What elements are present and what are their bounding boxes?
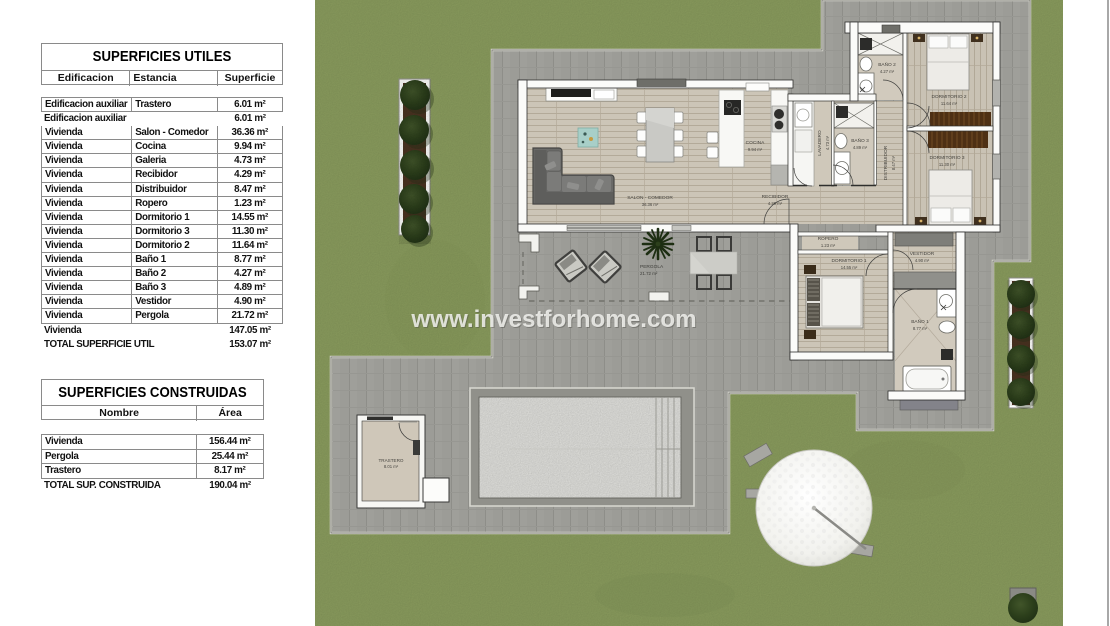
svg-text:LAVADERO: LAVADERO	[817, 130, 823, 156]
svg-text:DORMITORIO 2: DORMITORIO 2	[931, 94, 966, 100]
svg-text:BAÑO 3: BAÑO 3	[851, 137, 869, 144]
svg-text:8.47 m²: 8.47 m²	[891, 155, 896, 170]
svg-text:4.27 m²: 4.27 m²	[880, 69, 895, 74]
svg-text:ROPERO: ROPERO	[818, 236, 839, 242]
svg-text:8.77 m²: 8.77 m²	[913, 326, 928, 331]
svg-text:1.23 m²: 1.23 m²	[821, 243, 836, 248]
svg-text:9.94 m²: 9.94 m²	[748, 147, 763, 152]
svg-text:14.55 m²: 14.55 m²	[841, 265, 858, 270]
svg-text:COCINA: COCINA	[746, 140, 765, 146]
svg-text:RECIBIDOR: RECIBIDOR	[762, 194, 789, 200]
svg-text:4.29 m²: 4.29 m²	[768, 201, 783, 206]
svg-text:VESTIDOR: VESTIDOR	[910, 251, 935, 257]
svg-text:DORMITORIO 1: DORMITORIO 1	[831, 258, 866, 264]
svg-text:11.64 m²: 11.64 m²	[941, 101, 958, 106]
svg-text:4.89 m²: 4.89 m²	[853, 145, 868, 150]
svg-text:TRASTERO: TRASTERO	[378, 458, 403, 463]
svg-text:36.36 m²: 36.36 m²	[642, 202, 659, 207]
svg-text:4.90 m²: 4.90 m²	[915, 258, 930, 263]
svg-text:8.01 m²: 8.01 m²	[384, 464, 399, 469]
svg-text:SALON - COMEDOR: SALON - COMEDOR	[627, 195, 673, 201]
svg-text:4.73 m²: 4.73 m²	[825, 135, 830, 150]
svg-text:www.investforhome.com: www.investforhome.com	[410, 306, 696, 333]
svg-text:BAÑO 1: BAÑO 1	[911, 318, 929, 325]
svg-text:DISTRIBUIDOR: DISTRIBUIDOR	[883, 145, 889, 180]
svg-text:DORMITORIO 3: DORMITORIO 3	[929, 155, 964, 161]
svg-text:BAÑO 2: BAÑO 2	[878, 61, 896, 68]
svg-text:21.72 m²: 21.72 m²	[640, 271, 658, 276]
svg-text:PERGOLA: PERGOLA	[640, 264, 664, 270]
svg-text:11.30 m²: 11.30 m²	[939, 162, 956, 167]
